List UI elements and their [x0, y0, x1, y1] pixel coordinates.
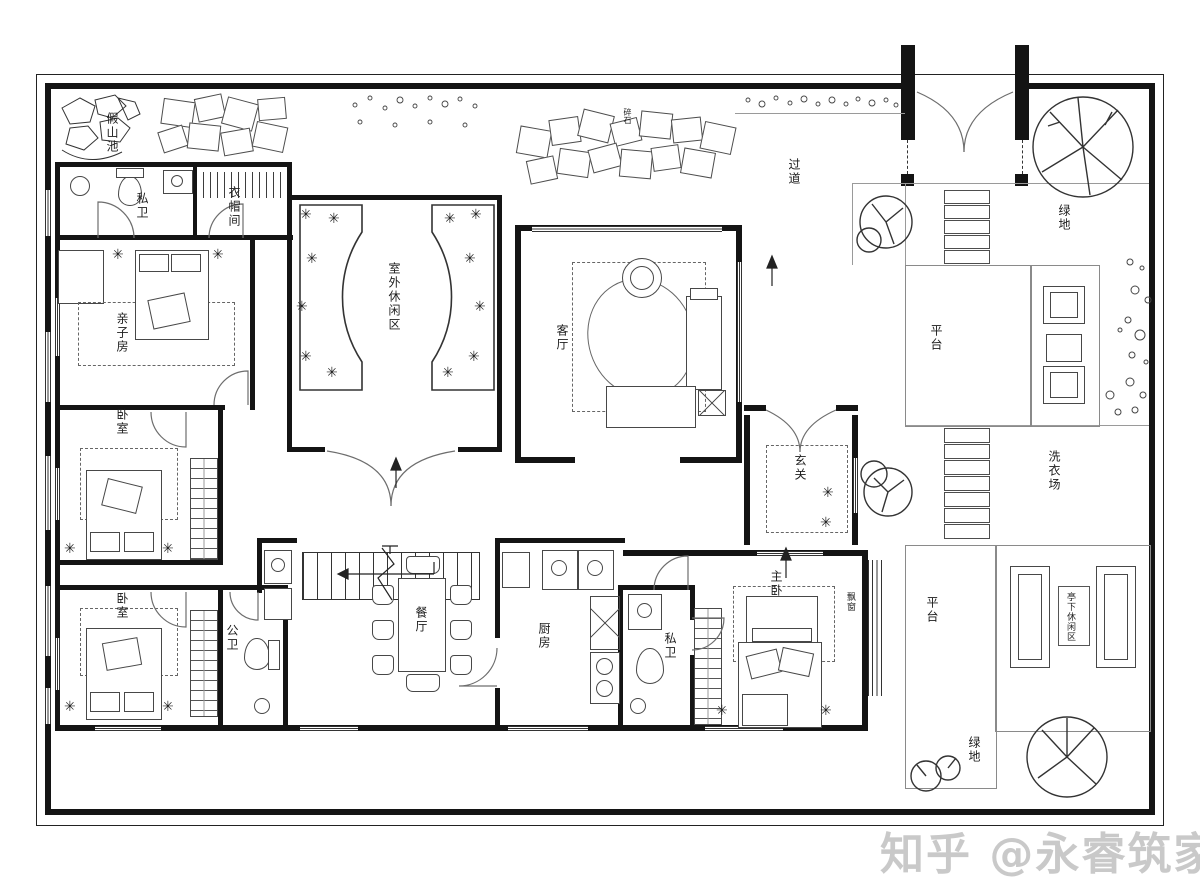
- plant-icon: ✳: [306, 252, 318, 266]
- quilt: [742, 694, 788, 726]
- wall-segment: [458, 447, 502, 452]
- chair: [450, 585, 472, 605]
- toilet-tank: [268, 640, 280, 670]
- terrace-chair-seat: [1050, 292, 1078, 318]
- shower-drain: [630, 698, 646, 714]
- plant-icon: ✳: [470, 208, 482, 222]
- wall-segment: [618, 585, 695, 590]
- chair: [450, 655, 472, 675]
- gate-column: [1015, 45, 1029, 140]
- wall-segment: [495, 688, 500, 730]
- plant-icon: ✳: [300, 208, 312, 222]
- pillow: [171, 254, 201, 272]
- window: [532, 226, 722, 232]
- sink: [70, 176, 90, 196]
- wall-segment: [744, 415, 750, 545]
- stepping-stone: [944, 220, 990, 234]
- room-label-laundry-yard: 洗衣场: [1046, 450, 1063, 492]
- window: [300, 726, 358, 731]
- sofa-arm: [690, 288, 718, 300]
- flagstone: [671, 116, 703, 143]
- flagstone: [650, 144, 681, 172]
- chair: [372, 585, 394, 605]
- terrace-table: [1046, 334, 1082, 362]
- room-label-private-bath-2: 私卫: [662, 632, 679, 660]
- wall-segment: [836, 405, 858, 411]
- plant-icon: ✳: [442, 366, 454, 380]
- wall-segment: [1028, 83, 1155, 89]
- side-table-inner: [630, 266, 654, 290]
- chair: [372, 620, 394, 640]
- room-label-cloakroom: 衣帽间: [226, 186, 243, 228]
- stepping-stone: [944, 508, 990, 523]
- room-label-green-bottom: 绿地: [966, 736, 983, 764]
- plant-icon: ✳: [162, 700, 174, 714]
- flagstone: [257, 97, 287, 121]
- gate-post: [901, 174, 914, 186]
- chair: [406, 556, 440, 574]
- bay-window: [868, 560, 882, 696]
- sink-basin: [551, 560, 567, 576]
- plant-icon: ✳: [468, 350, 480, 364]
- window: [45, 332, 51, 402]
- desk: [58, 250, 104, 304]
- chaise-sofa: [606, 386, 696, 428]
- wall-segment: [497, 195, 502, 452]
- wall-segment: [744, 405, 766, 411]
- wall-segment: [45, 809, 1155, 815]
- zone-line: [852, 183, 1149, 184]
- window: [737, 262, 742, 402]
- zone-line: [735, 113, 905, 114]
- tv-cabinet: [698, 390, 726, 416]
- wall-segment: [218, 405, 223, 565]
- room-label-dining-room: 餐厅: [413, 606, 430, 634]
- chair: [450, 620, 472, 640]
- wall-segment: [55, 585, 287, 590]
- wall-segment: [515, 457, 575, 463]
- room-label-passage: 过道: [786, 158, 803, 186]
- sink-basin: [587, 560, 603, 576]
- gate-post: [1015, 174, 1028, 186]
- stepping-stone: [944, 524, 990, 539]
- room-label-platform-lower: 平台: [924, 596, 941, 624]
- sofa: [686, 296, 722, 390]
- burner: [596, 658, 613, 675]
- plant-icon: ✳: [820, 516, 832, 530]
- pillow: [124, 692, 154, 712]
- window: [45, 190, 51, 236]
- room-label-kitchen: 厨房: [536, 622, 553, 650]
- room-label-public-bath: 公卫: [224, 624, 241, 652]
- room-label-private-bath-1: 私卫: [134, 192, 151, 220]
- room-label-foyer: 玄关: [792, 454, 809, 482]
- plant-icon: ✳: [444, 212, 456, 226]
- fridge: [502, 552, 530, 588]
- gate-dashed-line: [907, 140, 908, 174]
- cabinet: [590, 596, 620, 650]
- plant-icon: ✳: [64, 700, 76, 714]
- flagstone: [556, 148, 591, 178]
- window: [508, 726, 588, 731]
- pavilion-sofa-seat: [1018, 574, 1042, 660]
- room-label-bay-window: 飘窗: [844, 592, 857, 612]
- window: [757, 551, 823, 556]
- toilet: [636, 648, 664, 684]
- plant-icon: ✳: [162, 542, 174, 556]
- flagstone: [680, 147, 716, 178]
- pillow: [139, 254, 169, 272]
- wall-segment: [623, 550, 868, 556]
- wall-segment: [495, 538, 625, 543]
- window: [95, 726, 161, 731]
- plant-icon: ✳: [474, 300, 486, 314]
- wardrobe: [190, 610, 218, 717]
- washer: [264, 588, 292, 620]
- flagstone: [187, 122, 222, 151]
- window: [45, 688, 51, 724]
- plant-icon: ✳: [300, 350, 312, 364]
- plant-icon: ✳: [212, 248, 224, 262]
- platform-upper-area: [905, 265, 1032, 427]
- plant-icon: ✳: [112, 248, 124, 262]
- stepping-stone: [944, 444, 990, 459]
- plant-icon: ✳: [464, 252, 476, 266]
- wall-segment: [218, 585, 223, 730]
- stepping-stone: [944, 205, 990, 219]
- room-label-bedroom-2: 卧室: [114, 592, 131, 620]
- wall-segment: [55, 560, 223, 565]
- wall-segment: [257, 538, 262, 593]
- wardrobe: [190, 458, 218, 560]
- flagstone: [220, 128, 254, 157]
- pillow: [90, 692, 120, 712]
- chair: [406, 674, 440, 692]
- toilet: [244, 638, 270, 670]
- room-label-platform-upper: 平台: [928, 324, 945, 352]
- wall-segment: [287, 195, 502, 200]
- pillow: [124, 532, 154, 552]
- bench-seat: [752, 628, 812, 642]
- shower-drain: [254, 698, 270, 714]
- floor-plan: ✳ ✳ ✳ ✳ ✳ ✳ ✳ ✳ ✳ ✳ ✳ ✳ ✳ ✳ ✳ ✳ ✳ ✳: [0, 0, 1200, 885]
- wall-segment: [193, 162, 197, 240]
- wall-segment: [680, 457, 742, 463]
- window: [55, 638, 60, 690]
- flagstone: [548, 116, 581, 146]
- room-label-bedroom-1: 卧室: [114, 408, 131, 436]
- room-label-rockery-pond: 假山池: [104, 112, 121, 154]
- basin-drain: [171, 175, 183, 187]
- platform-lower-area: [905, 545, 997, 789]
- gate-column: [901, 45, 915, 140]
- stepping-stone: [944, 460, 990, 475]
- sink-drain: [637, 603, 652, 618]
- room-label-living-room: 客厅: [554, 324, 571, 352]
- plant-icon: ✳: [326, 366, 338, 380]
- plant-icon: ✳: [820, 704, 832, 718]
- wall-segment: [55, 405, 225, 410]
- plant-icon: ✳: [64, 542, 76, 556]
- wall-segment: [287, 447, 325, 452]
- plant-icon: ✳: [328, 212, 340, 226]
- wall-segment: [55, 235, 293, 240]
- wall-segment: [45, 83, 907, 89]
- window: [45, 456, 51, 530]
- stepping-stone: [944, 250, 990, 264]
- window: [853, 458, 858, 513]
- room-label-family-room: 亲子房: [114, 312, 131, 354]
- pavilion-sofa-seat: [1104, 574, 1128, 660]
- watermark-text: 知乎 @永睿筑家: [880, 818, 1200, 882]
- window: [45, 586, 51, 656]
- wall-segment: [55, 162, 291, 167]
- window: [55, 298, 60, 356]
- terrace-chair-seat: [1050, 372, 1078, 398]
- wall-segment: [250, 240, 255, 410]
- stepping-stone: [944, 235, 990, 249]
- room-label-master-bedroom: 主卧: [768, 570, 785, 598]
- stepping-stone: [944, 476, 990, 491]
- flagstone: [516, 125, 552, 158]
- burner: [596, 680, 613, 697]
- gate-dashed-line: [1022, 140, 1023, 174]
- zone-line: [852, 183, 853, 265]
- plant-icon: ✳: [296, 300, 308, 314]
- flagstone: [639, 110, 674, 139]
- wall-segment: [515, 225, 521, 463]
- wall-segment: [287, 162, 292, 452]
- room-label-outdoor-lounge: 室外休闲区: [386, 262, 403, 332]
- plant-icon: ✳: [716, 704, 728, 718]
- toilet-tank: [116, 168, 144, 178]
- room-label-gravel: 碎石: [622, 108, 633, 124]
- room-label-pavilion-lounge: 亭下休闲区: [1064, 592, 1077, 642]
- window: [55, 468, 60, 520]
- stepping-stone: [944, 428, 990, 443]
- flagstone: [619, 149, 653, 180]
- stepping-stone: [944, 492, 990, 507]
- wall-segment: [257, 538, 297, 543]
- chair: [372, 655, 394, 675]
- plant-icon: ✳: [822, 486, 834, 500]
- room-label-green-top: 绿地: [1056, 204, 1073, 232]
- pillow: [90, 532, 120, 552]
- wall-segment: [495, 538, 500, 638]
- sink-drain: [271, 558, 285, 572]
- stepping-stone: [944, 190, 990, 204]
